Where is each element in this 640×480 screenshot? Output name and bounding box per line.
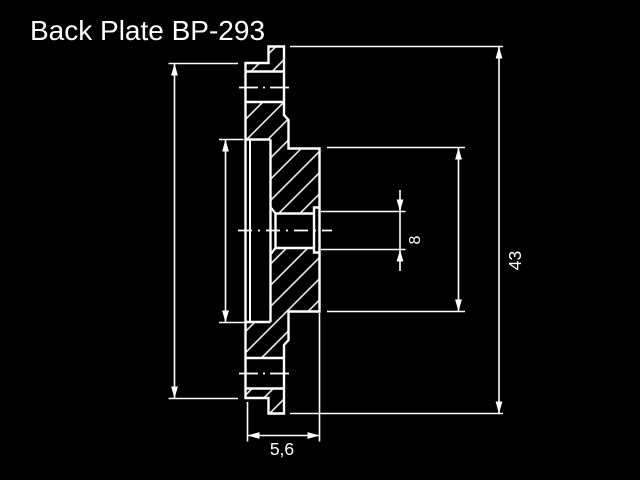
- svg-text:8: 8: [407, 235, 424, 244]
- svg-text:Back Plate BP-293: Back Plate BP-293: [30, 15, 265, 46]
- svg-text:43: 43: [505, 251, 525, 270]
- svg-text:5,6: 5,6: [270, 439, 294, 459]
